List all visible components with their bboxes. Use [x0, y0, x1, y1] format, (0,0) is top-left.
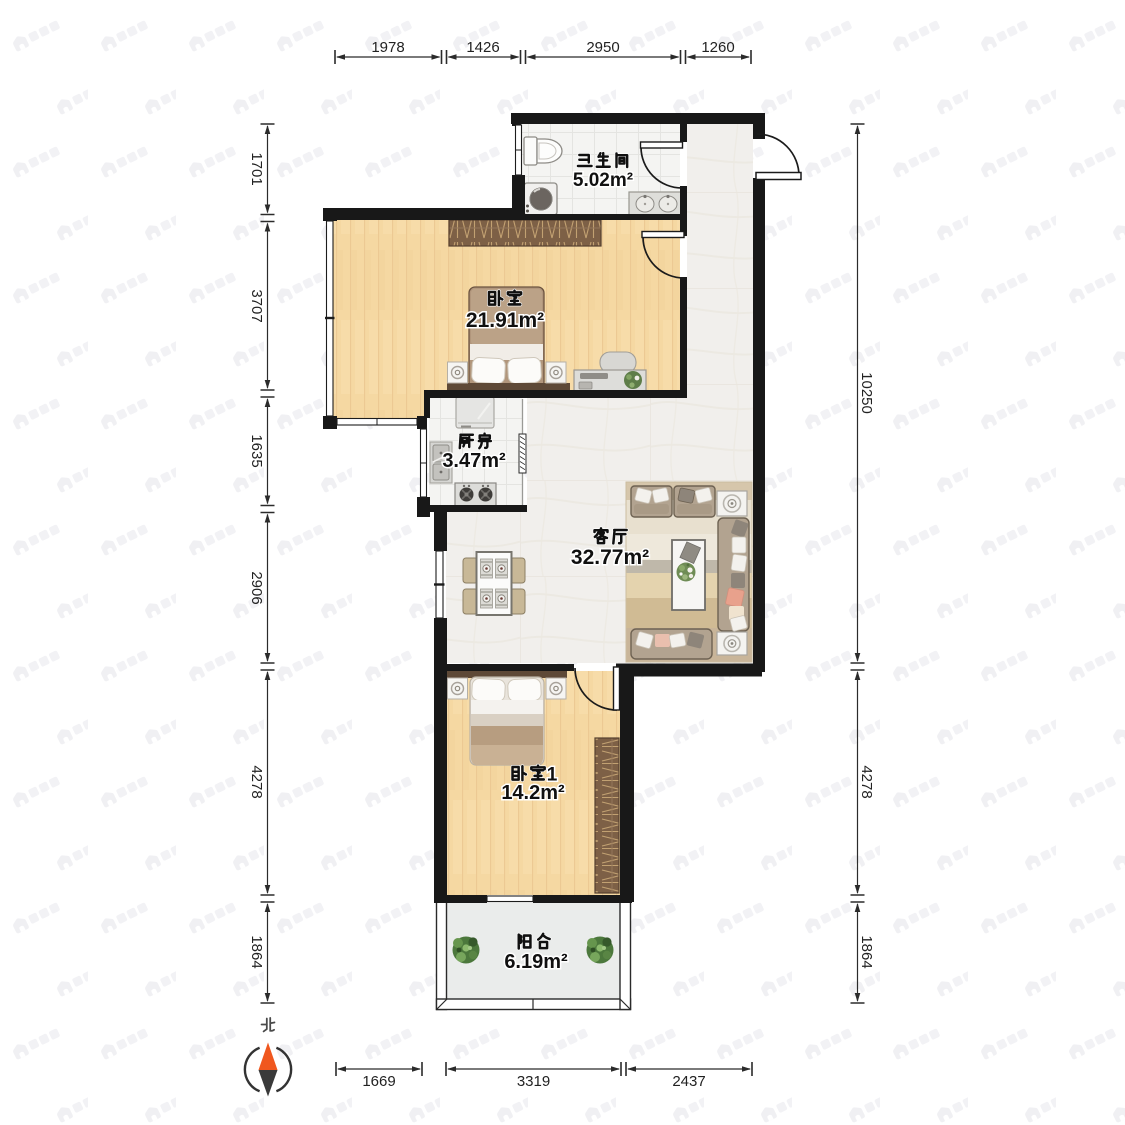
svg-text:1978: 1978: [371, 39, 404, 56]
svg-text:4278: 4278: [248, 765, 265, 798]
svg-text:3.47m²: 3.47m²: [442, 450, 506, 472]
svg-text:1864: 1864: [248, 935, 265, 968]
svg-text:21.91m²: 21.91m²: [466, 309, 544, 332]
svg-text:3319: 3319: [517, 1073, 550, 1090]
svg-text:1701: 1701: [248, 152, 265, 185]
svg-text:10250: 10250: [858, 372, 875, 414]
svg-text:2906: 2906: [248, 571, 265, 604]
svg-text:1635: 1635: [248, 434, 265, 467]
svg-text:1426: 1426: [466, 39, 499, 56]
svg-text:4278: 4278: [858, 765, 875, 798]
svg-text:1864: 1864: [858, 935, 875, 968]
svg-text:6.19m²: 6.19m²: [504, 951, 568, 973]
svg-text:3707: 3707: [248, 289, 265, 322]
svg-text:1669: 1669: [362, 1073, 395, 1090]
svg-text:1260: 1260: [701, 39, 734, 56]
svg-text:2437: 2437: [672, 1073, 705, 1090]
svg-text:14.2m²: 14.2m²: [501, 782, 565, 804]
svg-text:5.02m²: 5.02m²: [573, 170, 633, 191]
svg-text:32.77m²: 32.77m²: [571, 546, 649, 569]
svg-text:2950: 2950: [586, 39, 619, 56]
